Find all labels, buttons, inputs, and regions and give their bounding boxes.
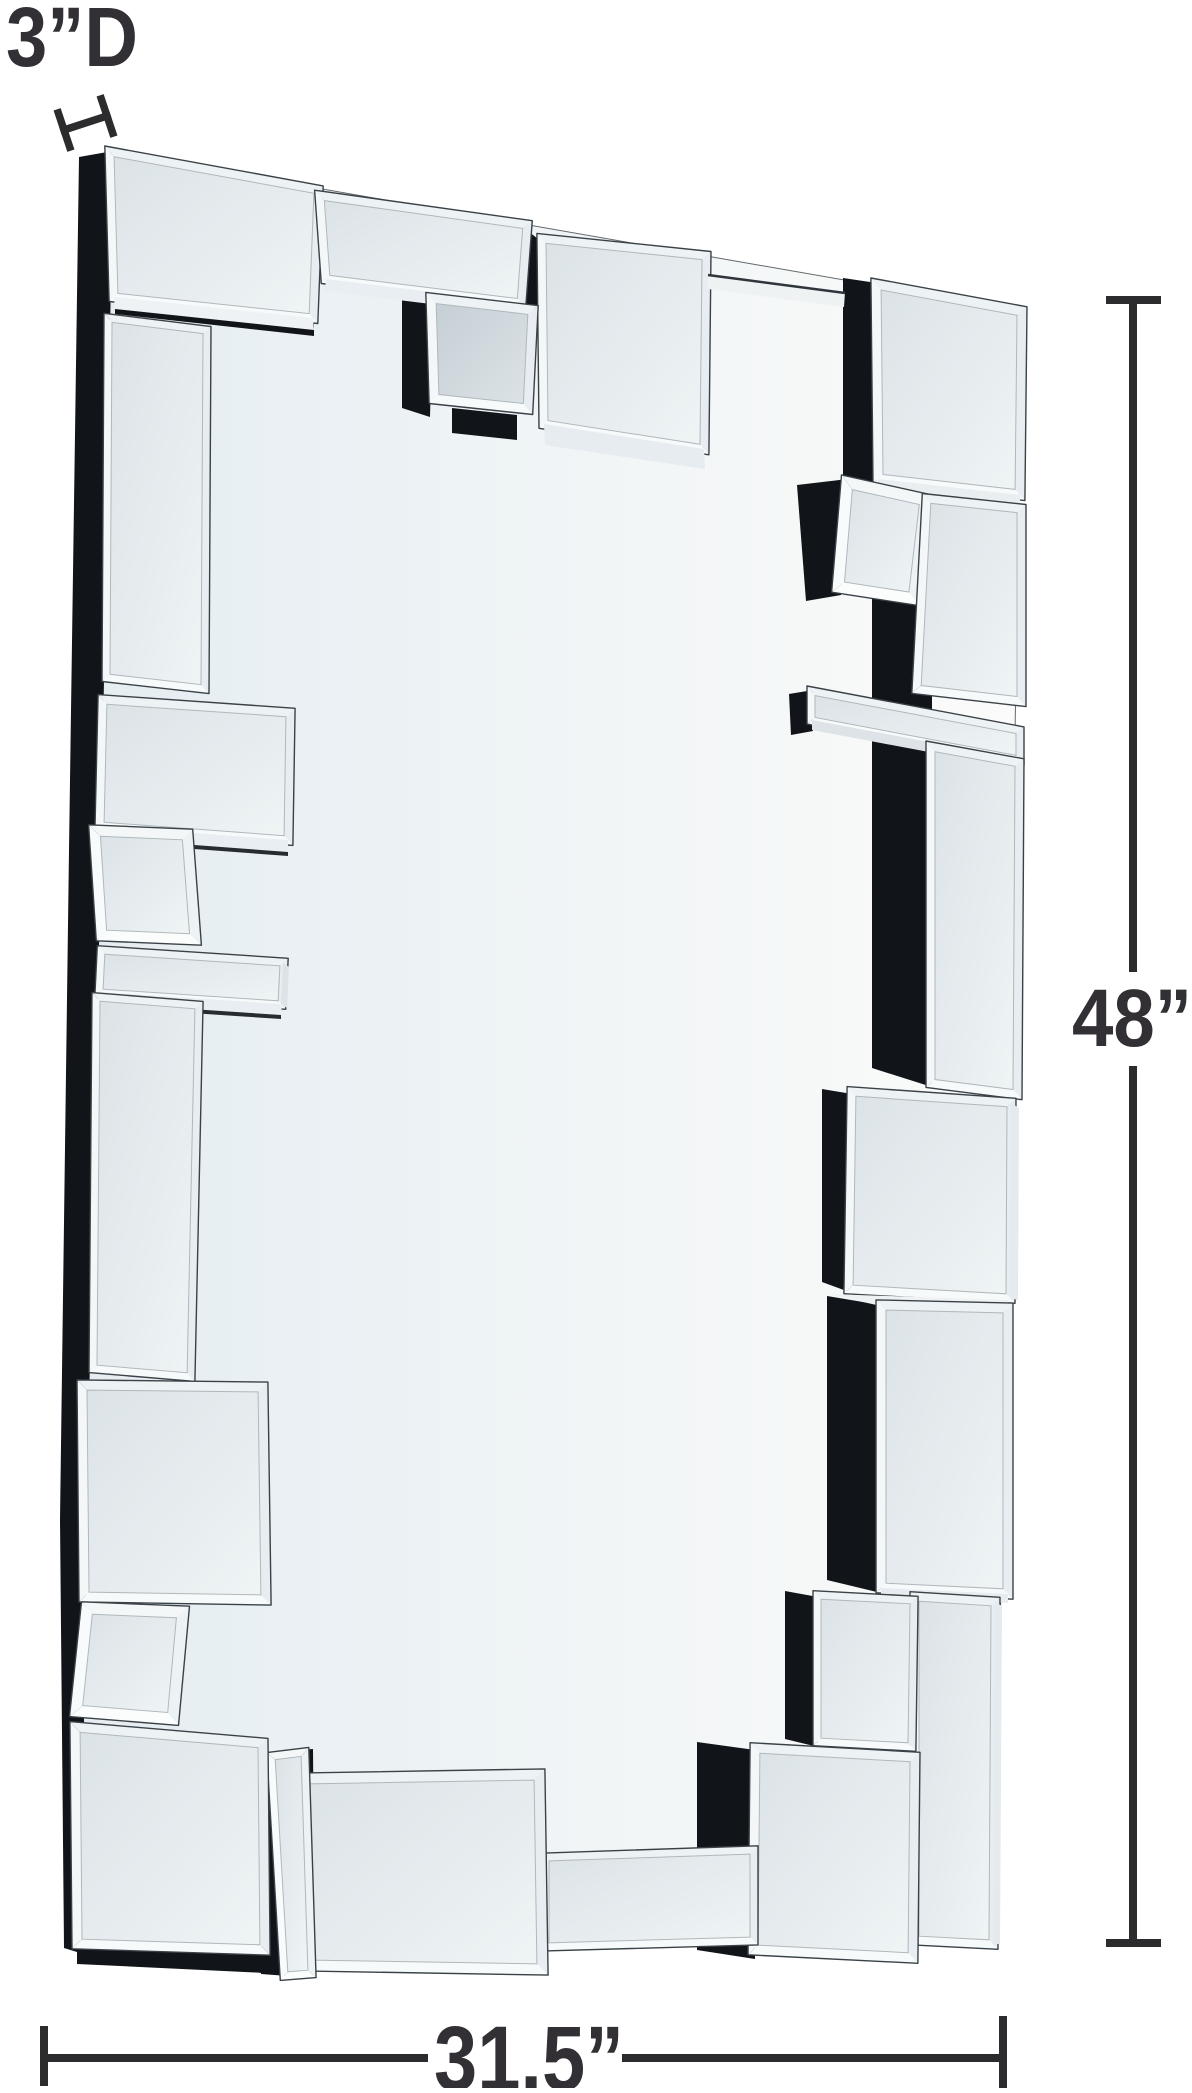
svg-text:48”: 48” xyxy=(1072,973,1192,1064)
svg-text:3”D: 3”D xyxy=(6,0,138,84)
svg-text:31.5”: 31.5” xyxy=(434,2008,624,2088)
